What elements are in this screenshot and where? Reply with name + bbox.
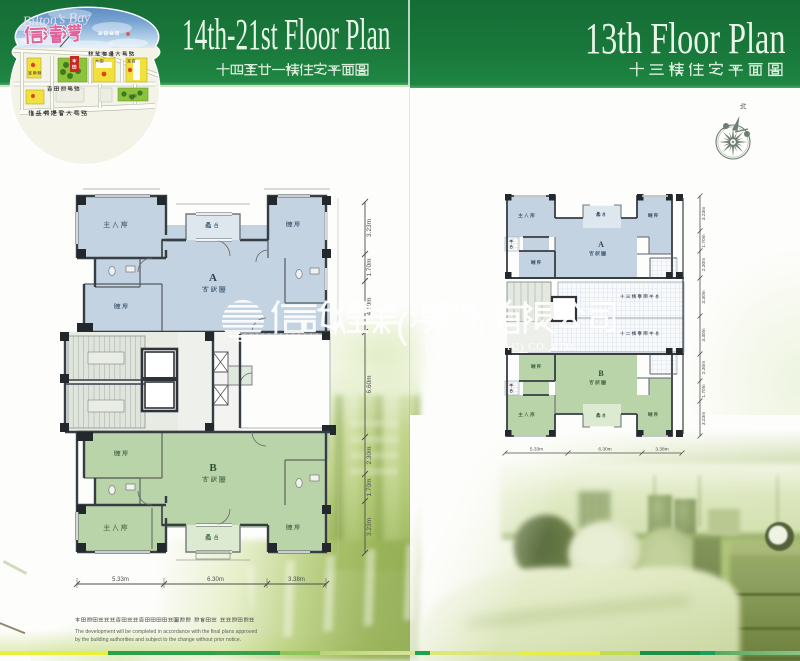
svg-text:): )	[474, 305, 486, 346]
svg-text:3.23m: 3.23m	[701, 207, 707, 220]
svg-text:3.38m: 3.38m	[288, 577, 305, 583]
svg-text:1.70m: 1.70m	[701, 384, 707, 397]
svg-text:by the building authorities an: by the building authorities and subject …	[75, 637, 241, 643]
svg-text:1.70m: 1.70m	[701, 234, 707, 247]
svg-text:6.30m: 6.30m	[598, 447, 611, 453]
svg-text:B: B	[209, 462, 217, 474]
svg-text:6.60m: 6.60m	[366, 375, 373, 393]
svg-text:3.30m: 3.30m	[701, 290, 707, 303]
svg-text:2.30m: 2.30m	[701, 361, 707, 374]
svg-text:2.30m: 2.30m	[701, 258, 707, 271]
svg-text:5.33m: 5.33m	[530, 447, 543, 453]
svg-text:A: A	[598, 240, 604, 249]
svg-text:3.30m: 3.30m	[701, 328, 707, 341]
svg-text:1.70m: 1.70m	[366, 478, 373, 496]
svg-text:B: B	[598, 369, 604, 378]
svg-text:1.70m: 1.70m	[366, 258, 373, 276]
svg-text:ESTATE (MACAU) CO.,LTD.: ESTATE (MACAU) CO.,LTD.	[425, 342, 578, 353]
svg-text:6.30m: 6.30m	[207, 577, 224, 583]
svg-text:(: (	[396, 305, 408, 346]
svg-text:3.23m: 3.23m	[701, 412, 707, 425]
svg-text:A: A	[209, 272, 217, 284]
svg-text:3.38m: 3.38m	[655, 447, 668, 453]
svg-text:3.23m: 3.23m	[366, 518, 373, 536]
svg-text:5.33m: 5.33m	[112, 577, 129, 583]
svg-text:The development will be comple: The development will be completed in acc…	[75, 629, 257, 635]
svg-text:2.30m: 2.30m	[366, 446, 373, 464]
svg-text:3.23m: 3.23m	[366, 219, 373, 237]
